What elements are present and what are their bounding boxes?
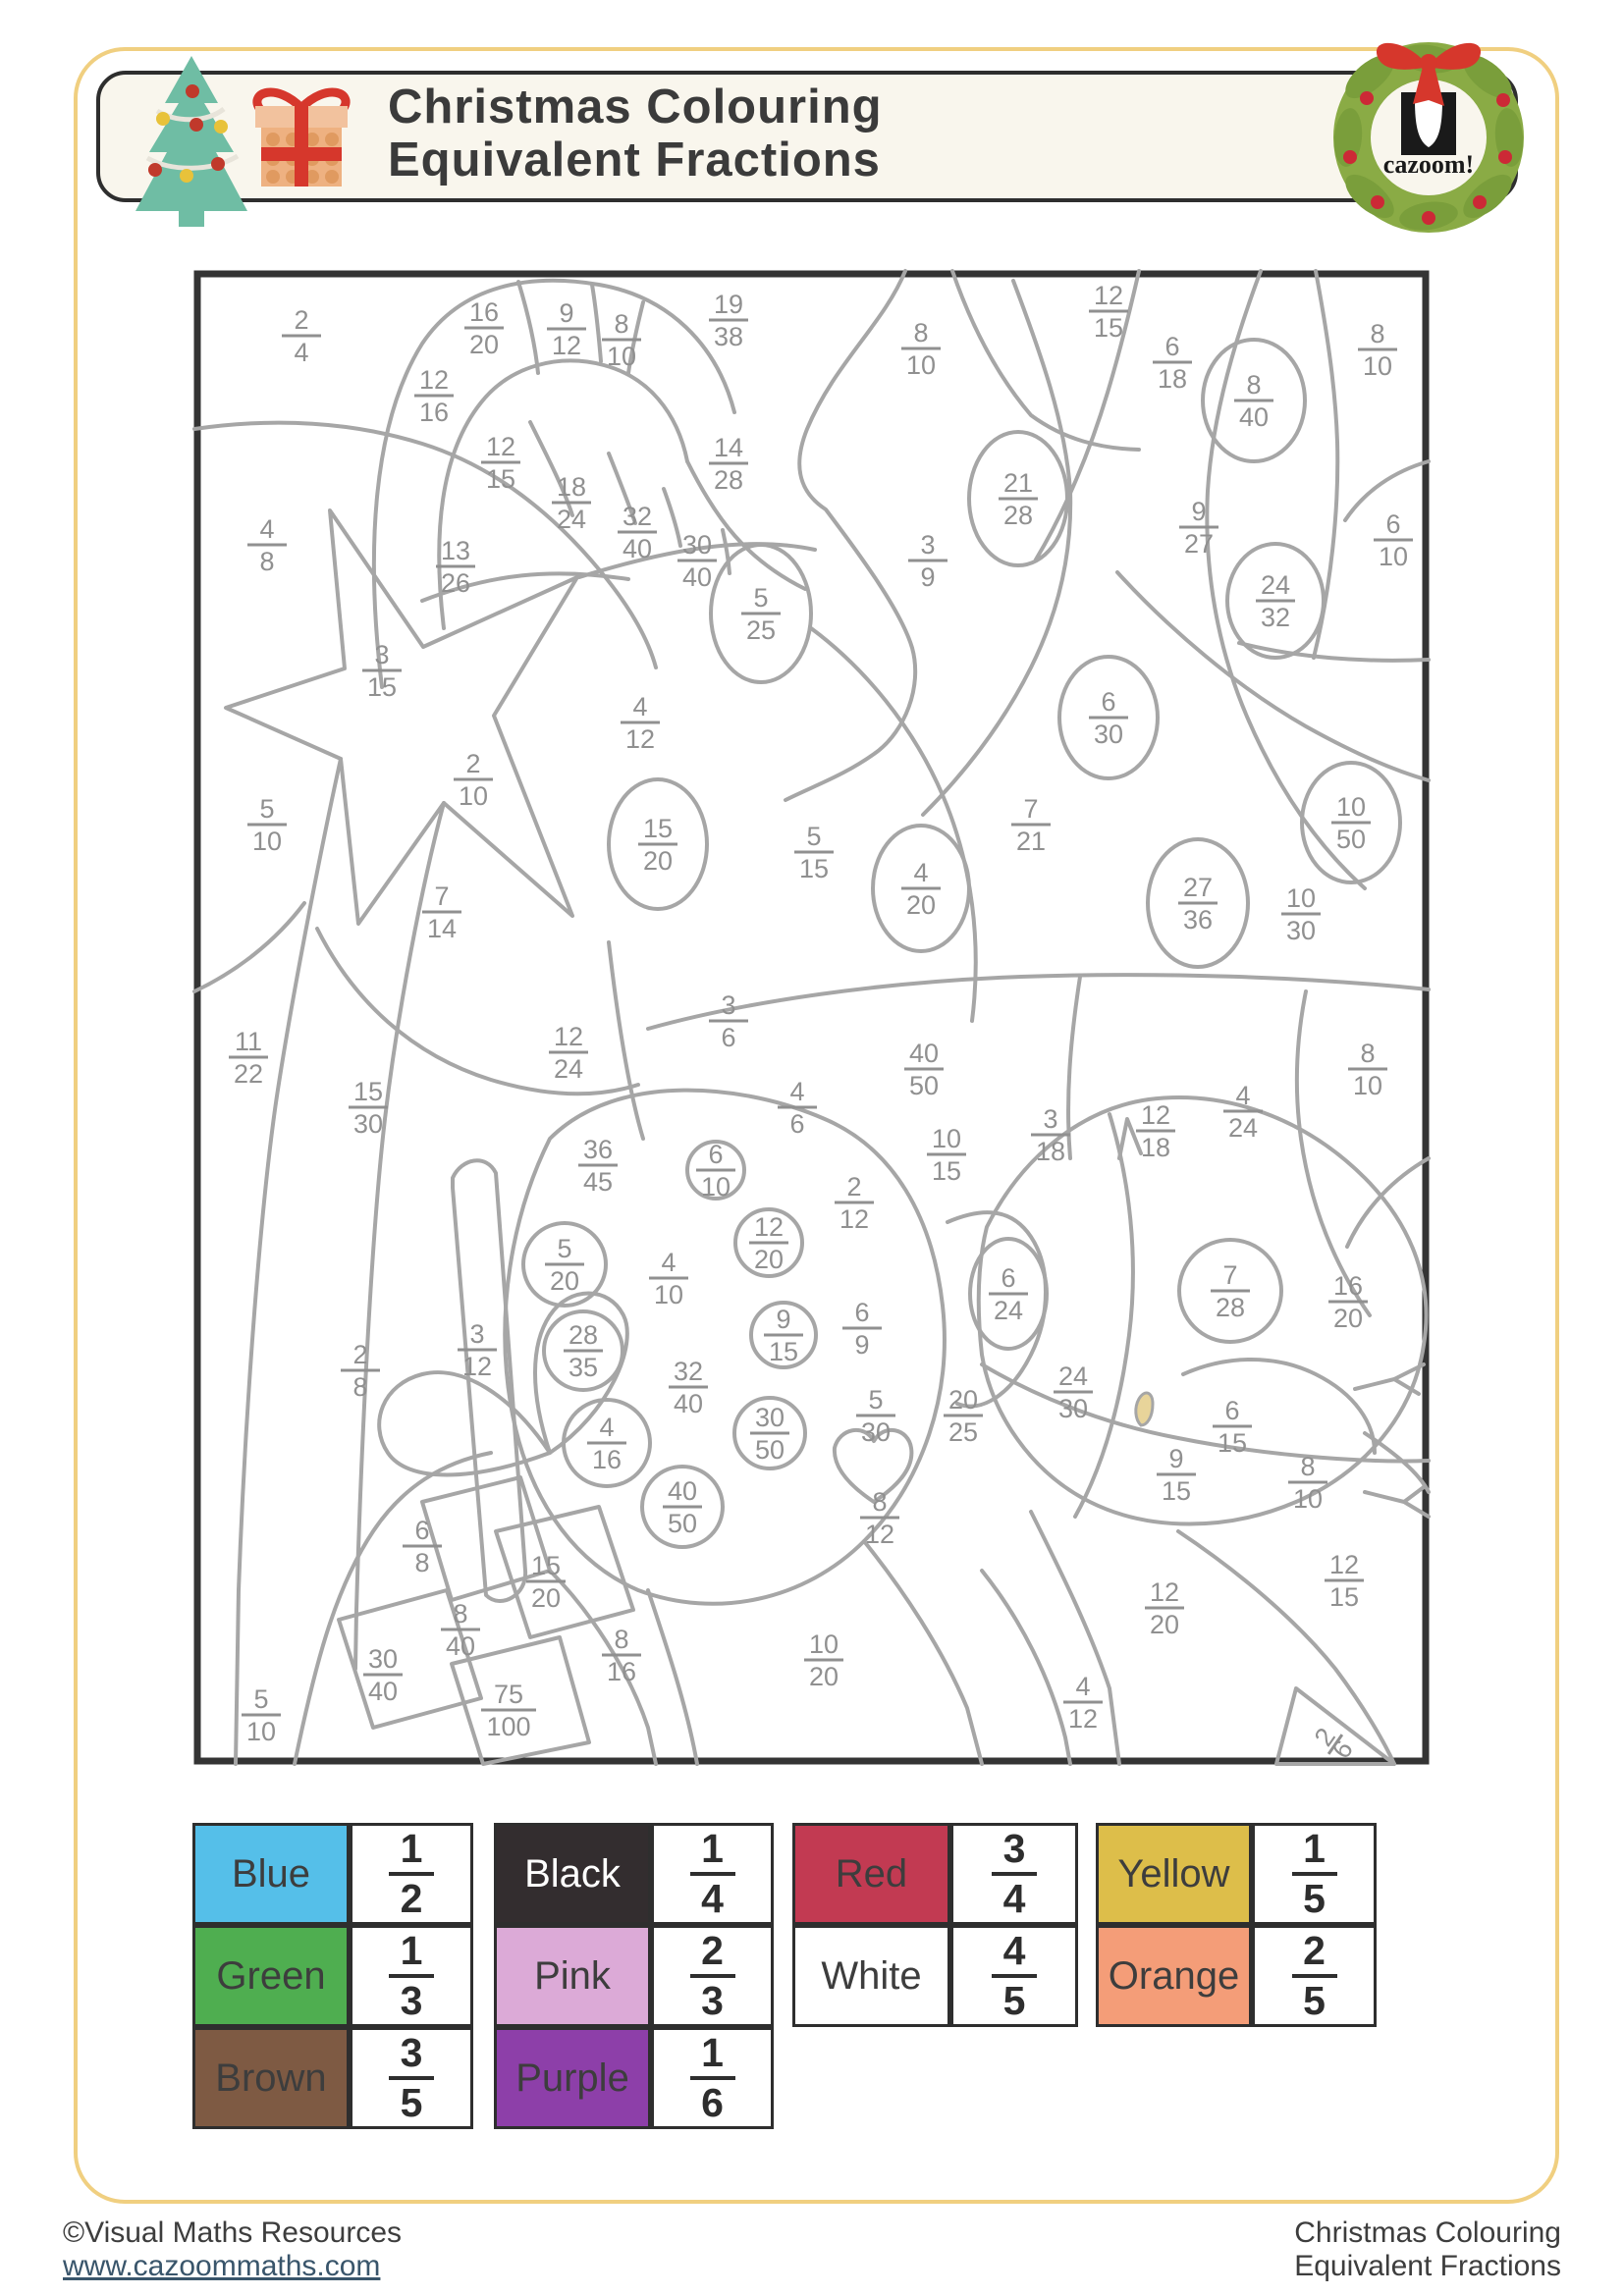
svg-text:10: 10 <box>809 1629 839 1659</box>
svg-text:75: 75 <box>494 1680 523 1709</box>
svg-text:4: 4 <box>789 1077 804 1106</box>
svg-text:12: 12 <box>1141 1100 1170 1130</box>
svg-text:10: 10 <box>459 781 488 811</box>
svg-text:12: 12 <box>865 1520 894 1549</box>
svg-text:3: 3 <box>920 530 935 560</box>
svg-text:4: 4 <box>294 338 308 367</box>
svg-text:10: 10 <box>654 1280 683 1309</box>
svg-text:100: 100 <box>486 1712 530 1741</box>
svg-text:22: 22 <box>234 1059 263 1089</box>
svg-text:2: 2 <box>465 749 480 778</box>
svg-text:15: 15 <box>353 1077 383 1106</box>
svg-text:8: 8 <box>1370 319 1384 348</box>
svg-text:5: 5 <box>753 583 768 613</box>
svg-text:20: 20 <box>1333 1304 1363 1333</box>
svg-text:12: 12 <box>462 1352 492 1381</box>
svg-text:2: 2 <box>846 1172 861 1201</box>
svg-text:20: 20 <box>809 1662 839 1691</box>
svg-text:50: 50 <box>668 1509 697 1538</box>
svg-text:7: 7 <box>1222 1260 1237 1290</box>
svg-text:38: 38 <box>714 322 743 351</box>
svg-text:20: 20 <box>906 890 936 920</box>
svg-text:20: 20 <box>754 1245 784 1274</box>
svg-text:8: 8 <box>1360 1039 1375 1068</box>
svg-text:3: 3 <box>1043 1104 1057 1134</box>
svg-text:30: 30 <box>861 1417 891 1447</box>
svg-text:10: 10 <box>1336 792 1366 822</box>
svg-text:40: 40 <box>682 562 712 592</box>
svg-text:10: 10 <box>1286 883 1316 913</box>
svg-text:32: 32 <box>674 1357 703 1386</box>
svg-text:15: 15 <box>799 854 829 883</box>
svg-text:5: 5 <box>557 1234 571 1263</box>
svg-text:40: 40 <box>674 1389 703 1418</box>
svg-text:50: 50 <box>1336 825 1366 854</box>
svg-text:40: 40 <box>623 534 652 563</box>
svg-text:15: 15 <box>1094 313 1123 343</box>
svg-text:15: 15 <box>1162 1476 1191 1506</box>
svg-text:50: 50 <box>909 1071 939 1100</box>
svg-text:8: 8 <box>352 1372 367 1402</box>
svg-text:24: 24 <box>557 505 586 534</box>
svg-text:30: 30 <box>1058 1394 1088 1423</box>
svg-text:4: 4 <box>661 1248 676 1277</box>
svg-text:18: 18 <box>557 472 586 502</box>
svg-text:20: 20 <box>550 1266 579 1296</box>
svg-text:24: 24 <box>1058 1362 1088 1391</box>
svg-text:12: 12 <box>754 1212 784 1242</box>
svg-text:12: 12 <box>1150 1577 1179 1607</box>
svg-text:5: 5 <box>253 1684 268 1714</box>
svg-text:10: 10 <box>607 342 636 371</box>
svg-text:8: 8 <box>453 1599 467 1629</box>
svg-text:9: 9 <box>1191 497 1206 526</box>
svg-text:12: 12 <box>552 331 581 360</box>
svg-text:2: 2 <box>294 305 308 335</box>
svg-text:40: 40 <box>446 1631 475 1661</box>
svg-text:20: 20 <box>643 846 673 876</box>
svg-text:15: 15 <box>1218 1428 1247 1458</box>
svg-text:4: 4 <box>913 858 928 887</box>
svg-text:2: 2 <box>352 1340 367 1369</box>
svg-text:24: 24 <box>994 1296 1023 1325</box>
svg-text:40: 40 <box>1239 402 1269 432</box>
svg-text:15: 15 <box>1329 1582 1359 1612</box>
svg-text:25: 25 <box>948 1417 978 1447</box>
svg-text:24: 24 <box>1261 570 1290 600</box>
svg-text:6: 6 <box>721 1023 735 1052</box>
svg-text:4: 4 <box>1075 1672 1090 1701</box>
svg-text:25: 25 <box>746 615 776 645</box>
svg-text:40: 40 <box>368 1677 398 1706</box>
svg-text:8: 8 <box>1246 370 1261 400</box>
svg-text:7: 7 <box>1023 794 1038 824</box>
svg-text:20: 20 <box>531 1583 561 1613</box>
svg-text:27: 27 <box>1183 873 1213 902</box>
svg-text:24: 24 <box>554 1054 583 1084</box>
svg-text:12: 12 <box>1094 281 1123 310</box>
svg-text:10: 10 <box>932 1124 961 1153</box>
svg-text:12: 12 <box>839 1204 869 1234</box>
svg-text:5: 5 <box>868 1385 883 1415</box>
svg-text:3: 3 <box>469 1319 484 1349</box>
svg-text:12: 12 <box>554 1022 583 1051</box>
svg-text:16: 16 <box>592 1445 622 1474</box>
svg-text:18: 18 <box>1158 364 1187 394</box>
svg-text:10: 10 <box>906 350 936 380</box>
svg-text:21: 21 <box>1003 468 1033 498</box>
svg-text:12: 12 <box>1068 1704 1098 1734</box>
svg-text:28: 28 <box>714 465 743 495</box>
svg-text:8: 8 <box>872 1487 887 1517</box>
svg-text:32: 32 <box>623 502 652 531</box>
svg-text:15: 15 <box>643 814 673 843</box>
svg-text:15: 15 <box>486 464 515 494</box>
svg-text:14: 14 <box>427 914 457 943</box>
svg-text:24: 24 <box>1228 1113 1258 1143</box>
svg-text:19: 19 <box>714 290 743 319</box>
svg-text:30: 30 <box>1094 720 1123 749</box>
svg-text:6: 6 <box>854 1298 869 1327</box>
svg-text:30: 30 <box>353 1109 383 1139</box>
svg-text:4: 4 <box>1235 1081 1250 1110</box>
svg-text:36: 36 <box>583 1135 613 1164</box>
svg-text:4: 4 <box>259 514 274 544</box>
svg-text:12: 12 <box>419 365 449 395</box>
svg-text:6: 6 <box>414 1516 429 1545</box>
svg-text:3: 3 <box>374 640 389 669</box>
svg-text:40: 40 <box>668 1476 697 1506</box>
svg-text:8: 8 <box>614 1625 628 1654</box>
svg-text:18: 18 <box>1036 1137 1065 1166</box>
svg-text:4: 4 <box>632 692 647 721</box>
svg-text:30: 30 <box>1286 916 1316 945</box>
svg-text:10: 10 <box>1353 1071 1382 1100</box>
svg-text:32: 32 <box>1261 603 1290 632</box>
svg-text:10: 10 <box>252 827 282 856</box>
svg-text:8: 8 <box>259 547 274 576</box>
svg-text:6: 6 <box>1001 1263 1015 1293</box>
svg-text:20: 20 <box>469 330 499 359</box>
svg-text:10: 10 <box>1379 542 1408 571</box>
svg-text:13: 13 <box>441 536 470 565</box>
svg-text:9: 9 <box>854 1330 869 1360</box>
svg-text:4: 4 <box>599 1413 614 1442</box>
svg-text:6: 6 <box>708 1140 723 1169</box>
svg-text:28: 28 <box>1216 1293 1245 1322</box>
svg-text:14: 14 <box>714 433 743 462</box>
svg-text:27: 27 <box>1184 529 1214 559</box>
svg-text:12: 12 <box>1329 1550 1359 1579</box>
svg-text:10: 10 <box>246 1717 276 1746</box>
svg-text:10: 10 <box>1293 1484 1323 1514</box>
svg-text:16: 16 <box>469 297 499 327</box>
svg-text:50: 50 <box>755 1435 785 1465</box>
svg-text:28: 28 <box>568 1320 598 1350</box>
svg-text:26: 26 <box>441 568 470 598</box>
svg-text:8: 8 <box>414 1548 429 1577</box>
svg-text:5: 5 <box>806 822 821 851</box>
svg-text:36: 36 <box>1183 905 1213 934</box>
svg-text:15: 15 <box>769 1337 798 1366</box>
svg-text:40: 40 <box>909 1039 939 1068</box>
svg-text:16: 16 <box>1333 1271 1363 1301</box>
svg-text:7: 7 <box>434 881 449 911</box>
svg-text:10: 10 <box>701 1172 731 1201</box>
svg-text:9: 9 <box>559 298 573 328</box>
svg-text:5: 5 <box>259 794 274 824</box>
svg-text:10: 10 <box>1363 351 1392 381</box>
svg-text:12: 12 <box>625 724 655 754</box>
svg-text:20: 20 <box>1150 1610 1179 1639</box>
svg-text:3: 3 <box>721 990 735 1020</box>
svg-text:15: 15 <box>932 1156 961 1186</box>
svg-text:9: 9 <box>776 1305 790 1334</box>
svg-text:30: 30 <box>682 530 712 560</box>
svg-text:11: 11 <box>235 1027 262 1056</box>
svg-text:30: 30 <box>755 1403 785 1432</box>
svg-text:15: 15 <box>531 1551 561 1580</box>
svg-text:6: 6 <box>1101 687 1115 717</box>
svg-text:18: 18 <box>1141 1133 1170 1162</box>
svg-text:8: 8 <box>913 318 928 347</box>
svg-text:6: 6 <box>1224 1396 1239 1425</box>
svg-text:9: 9 <box>920 562 935 592</box>
svg-text:6: 6 <box>789 1109 804 1139</box>
svg-text:9: 9 <box>1168 1444 1183 1473</box>
svg-text:12: 12 <box>486 432 515 461</box>
svg-text:8: 8 <box>614 309 628 339</box>
svg-text:28: 28 <box>1003 501 1033 530</box>
svg-text:45: 45 <box>583 1167 613 1197</box>
svg-text:6: 6 <box>1164 332 1179 361</box>
svg-text:16: 16 <box>419 398 449 427</box>
svg-text:15: 15 <box>367 672 397 702</box>
svg-text:30: 30 <box>368 1644 398 1674</box>
svg-text:6: 6 <box>1385 509 1400 539</box>
svg-text:8: 8 <box>1300 1452 1315 1481</box>
svg-text:35: 35 <box>568 1353 598 1382</box>
svg-text:16: 16 <box>607 1657 636 1686</box>
svg-text:21: 21 <box>1016 827 1046 856</box>
svg-text:20: 20 <box>948 1385 978 1415</box>
